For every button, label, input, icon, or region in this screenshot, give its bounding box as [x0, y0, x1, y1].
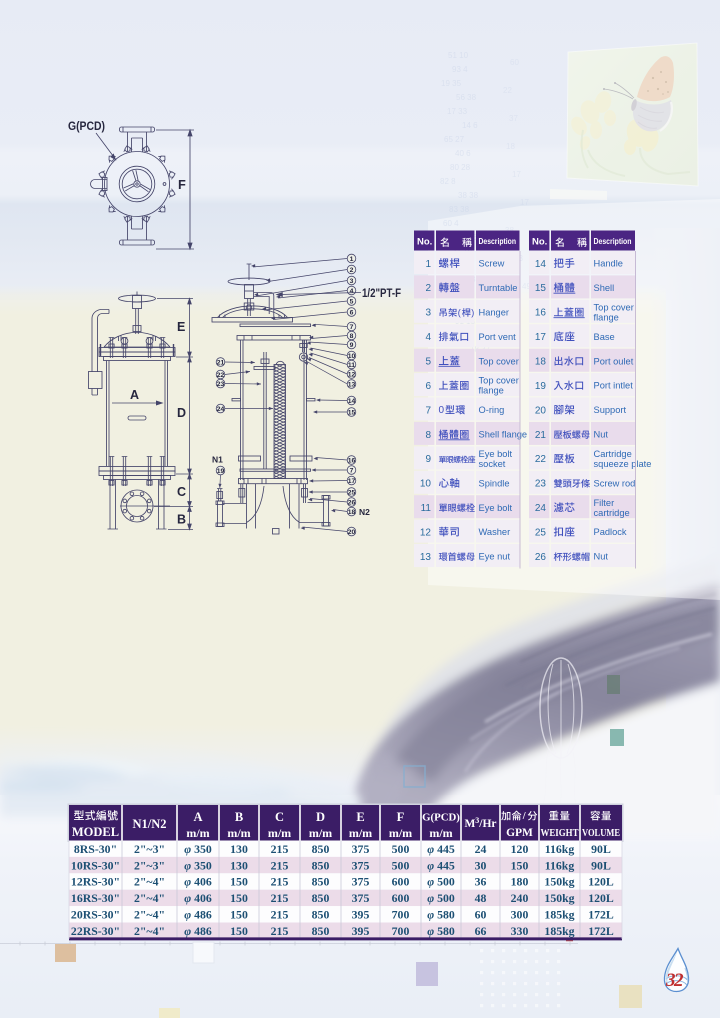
svg-text:2"~4": 2"~4" — [134, 924, 165, 938]
svg-text:Eye nut: Eye nut — [479, 552, 511, 562]
svg-text:F: F — [178, 177, 186, 192]
svg-text:cartridge: cartridge — [594, 508, 630, 518]
svg-text:20RS-30": 20RS-30" — [71, 908, 120, 922]
svg-text:A: A — [130, 388, 139, 402]
svg-text:7: 7 — [350, 467, 354, 474]
svg-text:24: 24 — [535, 503, 547, 514]
svg-text:18: 18 — [506, 142, 515, 151]
svg-text:22: 22 — [217, 372, 225, 379]
svg-text:2"~4": 2"~4" — [134, 875, 165, 889]
svg-text:66: 66 — [475, 924, 487, 938]
svg-text:26: 26 — [535, 552, 547, 563]
svg-text:N1/N2: N1/N2 — [132, 817, 166, 831]
svg-text:Shell: Shell — [594, 283, 615, 293]
svg-text:G(PCD): G(PCD) — [422, 812, 460, 824]
svg-text:93 4: 93 4 — [452, 65, 468, 74]
svg-text:13: 13 — [420, 552, 432, 563]
svg-text:22: 22 — [503, 86, 512, 95]
svg-text:Support: Support — [594, 405, 627, 415]
svg-text:m/m: m/m — [186, 826, 209, 840]
svg-text:7: 7 — [425, 405, 431, 416]
svg-text:Screw: Screw — [479, 259, 505, 269]
svg-text:Port oulet: Port oulet — [594, 356, 634, 366]
svg-text:φ 500: φ 500 — [427, 875, 455, 889]
svg-text:φ 350: φ 350 — [184, 858, 212, 872]
svg-text:90L: 90L — [591, 858, 611, 872]
svg-text:N2: N2 — [359, 507, 370, 517]
svg-text:E: E — [356, 810, 364, 824]
svg-text:3: 3 — [425, 308, 431, 319]
svg-text:36: 36 — [475, 875, 487, 889]
svg-text:172L: 172L — [588, 924, 614, 938]
svg-text:Hanger: Hanger — [479, 307, 510, 317]
svg-text:1/2"PT-F: 1/2"PT-F — [362, 288, 401, 300]
svg-text:GPM: GPM — [506, 827, 533, 839]
svg-text:Screw rod: Screw rod — [594, 478, 636, 488]
svg-text:10: 10 — [420, 479, 432, 490]
svg-text:18: 18 — [535, 357, 547, 368]
svg-text:(: ( — [458, 307, 461, 317]
svg-text:6: 6 — [350, 309, 354, 316]
svg-text:37: 37 — [509, 114, 518, 123]
svg-text:150: 150 — [511, 858, 529, 872]
svg-text:80 28: 80 28 — [450, 163, 471, 172]
svg-text:120L: 120L — [588, 891, 614, 905]
svg-text:116kg: 116kg — [545, 842, 575, 856]
svg-text:51 10: 51 10 — [448, 51, 469, 60]
svg-text:500: 500 — [392, 842, 410, 856]
svg-text:m/m: m/m — [227, 826, 250, 840]
svg-text:17: 17 — [348, 478, 356, 485]
svg-text:14 6: 14 6 — [462, 121, 478, 130]
svg-text:2"~4": 2"~4" — [134, 908, 165, 922]
svg-text:20: 20 — [535, 405, 547, 416]
svg-text:2"~3": 2"~3" — [134, 858, 165, 872]
svg-text:90L: 90L — [591, 842, 611, 856]
svg-text:600: 600 — [392, 891, 410, 905]
svg-text:11: 11 — [348, 362, 355, 369]
svg-text:m/m: m/m — [349, 826, 372, 840]
svg-text:N1: N1 — [212, 455, 223, 465]
svg-text:flange: flange — [594, 312, 619, 322]
svg-text:850: 850 — [312, 858, 330, 872]
svg-text:0: 0 — [439, 405, 445, 416]
svg-text:D: D — [316, 810, 325, 824]
svg-text:30: 30 — [475, 858, 487, 872]
svg-text:5: 5 — [425, 357, 431, 368]
svg-text:Port vent: Port vent — [479, 332, 517, 342]
svg-text:m/m: m/m — [429, 826, 452, 840]
svg-text:26: 26 — [348, 499, 356, 506]
svg-text:18: 18 — [348, 509, 356, 516]
svg-text:375: 375 — [352, 891, 370, 905]
svg-text:flange: flange — [479, 386, 504, 396]
svg-text:83 38: 83 38 — [449, 205, 470, 214]
svg-text:/: / — [522, 811, 526, 822]
svg-text:150: 150 — [230, 908, 248, 922]
svg-text:Base: Base — [594, 332, 615, 342]
svg-text:socket: socket — [479, 459, 506, 469]
svg-text:8RS-30": 8RS-30" — [74, 842, 117, 856]
svg-text:Top cover: Top cover — [479, 376, 519, 386]
svg-text:φ 406: φ 406 — [184, 891, 212, 905]
svg-text:850: 850 — [312, 875, 330, 889]
svg-text:Spindle: Spindle — [479, 478, 510, 488]
svg-text:120L: 120L — [588, 875, 614, 889]
svg-text:φ 580: φ 580 — [427, 908, 455, 922]
svg-text:23: 23 — [535, 479, 547, 490]
svg-text:10: 10 — [348, 353, 356, 360]
svg-text:E: E — [177, 320, 185, 334]
svg-text:17 33: 17 33 — [447, 107, 468, 116]
svg-text:395: 395 — [352, 908, 370, 922]
svg-text:600: 600 — [392, 875, 410, 889]
svg-text:700: 700 — [392, 924, 410, 938]
svg-text:130: 130 — [230, 858, 248, 872]
svg-text:m/m: m/m — [268, 826, 291, 840]
svg-text:215: 215 — [271, 875, 289, 889]
svg-text:D: D — [177, 406, 186, 420]
svg-text:15: 15 — [348, 409, 356, 416]
svg-text:215: 215 — [271, 908, 289, 922]
svg-text:16RS-30": 16RS-30" — [71, 891, 120, 905]
svg-text:B: B — [235, 810, 243, 824]
svg-text:150: 150 — [230, 875, 248, 889]
svg-text:850: 850 — [312, 891, 330, 905]
svg-text:Turntable: Turntable — [479, 283, 518, 293]
svg-text:375: 375 — [352, 842, 370, 856]
svg-text:2: 2 — [425, 283, 431, 294]
svg-text:48: 48 — [475, 891, 487, 905]
svg-text:φ 406: φ 406 — [184, 875, 212, 889]
svg-text:Nut: Nut — [594, 552, 609, 562]
svg-text:120: 120 — [511, 842, 529, 856]
svg-text:150kg: 150kg — [544, 875, 574, 889]
svg-text:17: 17 — [520, 198, 529, 207]
svg-text:φ 486: φ 486 — [184, 908, 212, 922]
svg-text:C: C — [177, 485, 186, 499]
svg-text:m/m: m/m — [309, 826, 332, 840]
svg-text:φ 350: φ 350 — [184, 842, 212, 856]
svg-text:12: 12 — [348, 371, 356, 378]
svg-text:Washer: Washer — [479, 527, 511, 537]
svg-text:VOLUME: VOLUME — [582, 828, 620, 839]
svg-text:17: 17 — [535, 332, 547, 343]
svg-text:7: 7 — [350, 324, 354, 331]
svg-text:14: 14 — [348, 398, 356, 405]
svg-text:Nut: Nut — [594, 430, 609, 440]
svg-text:Padlock: Padlock — [594, 527, 627, 537]
svg-text:130: 130 — [230, 842, 248, 856]
svg-text:38 38: 38 38 — [458, 191, 479, 200]
svg-text:700: 700 — [392, 908, 410, 922]
svg-text:185kg: 185kg — [544, 908, 574, 922]
svg-text:82 8: 82 8 — [440, 177, 456, 186]
svg-text:Handle: Handle — [594, 259, 623, 269]
svg-text:19: 19 — [217, 468, 225, 475]
svg-text:240: 240 — [511, 891, 529, 905]
svg-text:21: 21 — [217, 359, 225, 366]
svg-text:squeeze plate: squeeze plate — [594, 459, 652, 469]
svg-text:60: 60 — [475, 908, 487, 922]
svg-text:60: 60 — [510, 58, 519, 67]
svg-text:Port intlet: Port intlet — [594, 381, 634, 391]
svg-text:300: 300 — [511, 908, 529, 922]
svg-text:4: 4 — [350, 288, 354, 295]
svg-text:φ 445: φ 445 — [427, 858, 455, 872]
svg-text:2"~4": 2"~4" — [134, 891, 165, 905]
svg-text:850: 850 — [312, 908, 330, 922]
svg-text:2: 2 — [350, 267, 354, 274]
svg-text:850: 850 — [312, 924, 330, 938]
svg-text:No.: No. — [417, 237, 432, 248]
svg-text:32: 32 — [665, 970, 684, 991]
svg-text:8: 8 — [350, 333, 354, 340]
svg-text:215: 215 — [271, 842, 289, 856]
svg-text:150: 150 — [230, 891, 248, 905]
svg-text:500: 500 — [392, 858, 410, 872]
svg-text:10RS-30": 10RS-30" — [71, 858, 120, 872]
svg-text:330: 330 — [511, 924, 529, 938]
svg-text:19 35: 19 35 — [441, 79, 462, 88]
svg-text:Description: Description — [594, 236, 632, 246]
svg-text:8: 8 — [425, 430, 431, 441]
svg-text:F: F — [397, 810, 405, 824]
svg-text:24: 24 — [217, 406, 225, 413]
svg-text:15: 15 — [535, 283, 547, 294]
svg-text:3: 3 — [350, 278, 354, 285]
svg-text:116kg: 116kg — [545, 858, 575, 872]
svg-text:21: 21 — [535, 430, 547, 441]
svg-text:150kg: 150kg — [544, 891, 574, 905]
svg-text:16: 16 — [348, 457, 356, 464]
svg-text:65 27: 65 27 — [444, 135, 465, 144]
svg-text:Cartridge: Cartridge — [594, 449, 632, 459]
svg-text:395: 395 — [352, 924, 370, 938]
svg-text:Description: Description — [479, 236, 517, 246]
svg-text:): ) — [471, 307, 474, 317]
svg-text:φ 445: φ 445 — [427, 842, 455, 856]
svg-text:φ 500: φ 500 — [427, 891, 455, 905]
svg-text:1: 1 — [425, 259, 431, 270]
svg-text:Eye bolt: Eye bolt — [479, 503, 513, 513]
svg-text:φ 486: φ 486 — [184, 924, 212, 938]
svg-text:850: 850 — [312, 842, 330, 856]
svg-text:B: B — [177, 513, 186, 527]
svg-text:14: 14 — [535, 259, 547, 270]
svg-text:17: 17 — [512, 170, 521, 179]
svg-text:4: 4 — [425, 332, 431, 343]
svg-text:Filter: Filter — [594, 498, 615, 508]
svg-text:185kg: 185kg — [544, 924, 574, 938]
svg-text:5: 5 — [350, 298, 354, 305]
svg-text:19: 19 — [535, 381, 547, 392]
svg-text:2"~3": 2"~3" — [134, 842, 165, 856]
svg-text:20: 20 — [348, 529, 356, 536]
svg-text:M3/Hr: M3/Hr — [464, 816, 496, 830]
svg-text:22RS-30": 22RS-30" — [71, 924, 120, 938]
svg-text:375: 375 — [352, 875, 370, 889]
svg-text:A: A — [193, 810, 202, 824]
svg-text:150: 150 — [230, 924, 248, 938]
svg-text:16: 16 — [535, 308, 547, 319]
svg-text:22: 22 — [535, 454, 547, 465]
svg-text:180: 180 — [511, 875, 529, 889]
svg-text:MODEL: MODEL — [72, 825, 119, 839]
svg-text:C: C — [275, 810, 284, 824]
svg-text:215: 215 — [271, 924, 289, 938]
svg-text:No.: No. — [532, 237, 547, 248]
svg-text:25: 25 — [535, 527, 547, 538]
svg-text:O-ring: O-ring — [479, 405, 505, 415]
svg-text:375: 375 — [352, 858, 370, 872]
svg-text:60 4: 60 4 — [443, 219, 459, 228]
svg-text:40 6: 40 6 — [455, 149, 471, 158]
svg-text:Top cover: Top cover — [479, 356, 519, 366]
svg-text:G(PCD): G(PCD) — [68, 119, 105, 133]
svg-text:11: 11 — [421, 503, 432, 514]
svg-text:172L: 172L — [588, 908, 614, 922]
svg-text:25: 25 — [348, 489, 356, 496]
svg-text:12RS-30": 12RS-30" — [71, 875, 120, 889]
svg-text:13: 13 — [348, 381, 356, 388]
svg-text:6: 6 — [425, 381, 431, 392]
svg-text:9: 9 — [425, 454, 431, 465]
svg-text:56 38: 56 38 — [456, 93, 477, 102]
svg-text:m/m: m/m — [389, 826, 412, 840]
svg-text:Top cover: Top cover — [594, 302, 634, 312]
svg-text:Eye bolt: Eye bolt — [479, 449, 513, 459]
svg-text:9: 9 — [350, 342, 354, 349]
svg-text:215: 215 — [271, 891, 289, 905]
svg-text:WEIGHT: WEIGHT — [541, 828, 579, 839]
svg-text:12: 12 — [420, 527, 432, 538]
svg-text:24: 24 — [475, 842, 487, 856]
svg-text:23: 23 — [217, 381, 225, 388]
svg-text:φ 580: φ 580 — [427, 924, 455, 938]
svg-text:1: 1 — [350, 256, 354, 263]
svg-text:215: 215 — [271, 858, 289, 872]
